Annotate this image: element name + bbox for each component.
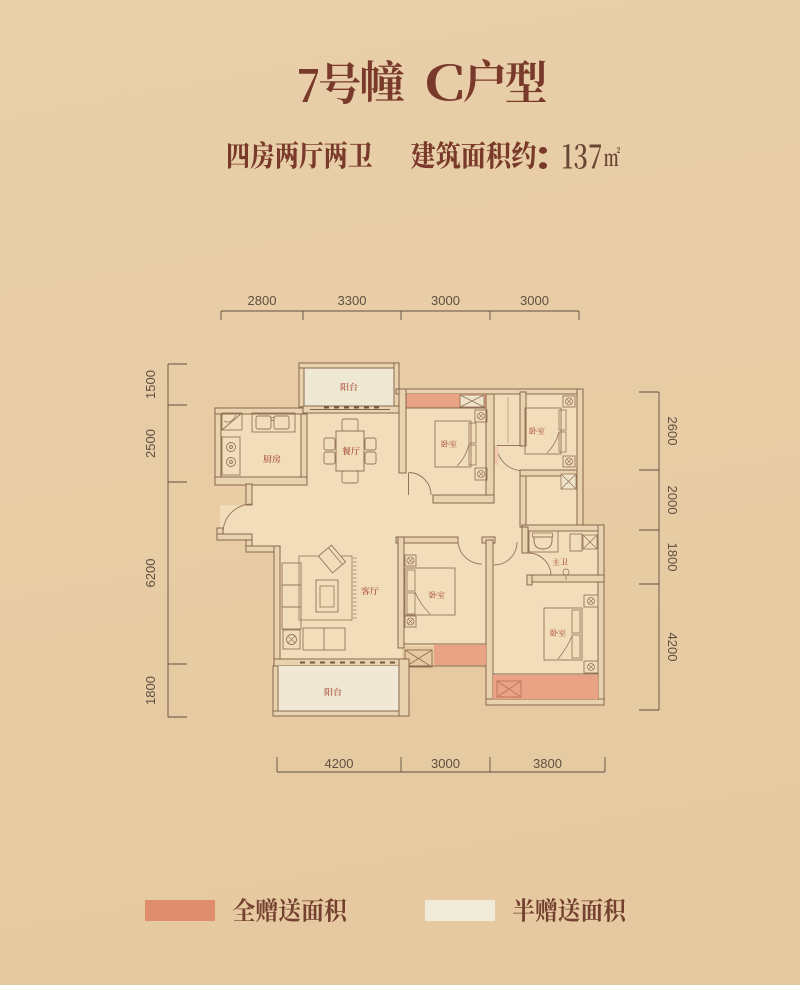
svg-text:2800: 2800 <box>248 293 277 308</box>
svg-text:2500: 2500 <box>143 429 158 458</box>
svg-text:4200: 4200 <box>665 633 680 662</box>
svg-text:1500: 1500 <box>143 370 158 399</box>
svg-text:3000: 3000 <box>520 293 549 308</box>
svg-text:3800: 3800 <box>533 756 562 771</box>
svg-text:6200: 6200 <box>143 559 158 588</box>
svg-text:2000: 2000 <box>665 486 680 515</box>
svg-text:2600: 2600 <box>665 417 680 446</box>
svg-text:1800: 1800 <box>665 543 680 572</box>
svg-text:1800: 1800 <box>143 676 158 705</box>
svg-text:4200: 4200 <box>325 756 354 771</box>
svg-text:3300: 3300 <box>338 293 367 308</box>
svg-text:3000: 3000 <box>431 756 460 771</box>
svg-text:3000: 3000 <box>431 293 460 308</box>
